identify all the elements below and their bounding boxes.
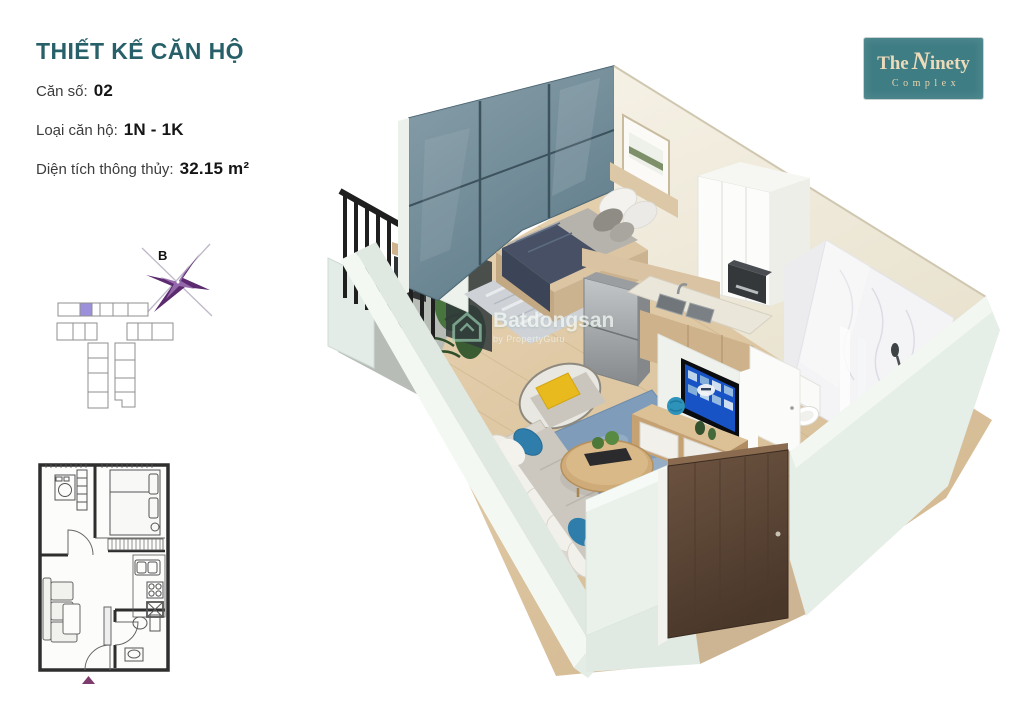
entrance-door [658,443,788,646]
spec-clear-area: Diện tích thông thủy:32.15 m² [36,159,249,179]
spec-unit-type: Loại căn hộ:1N - 1K [36,120,249,140]
unit-cells [57,303,173,408]
table-plant [592,437,604,449]
plan-bed [110,470,160,535]
console-plant [695,421,705,435]
watermark-brand: Batdongsan [493,310,614,331]
watermark: Batdongsan by PropertyGuru [448,308,614,346]
compass: B [142,244,212,316]
compass-north-label: B [158,248,167,263]
apartment-design-sheet: B [0,0,1024,724]
entrance-door-leaf [668,450,788,638]
project-logo: TheNinety Complex [864,38,983,99]
logo-stylized-n: N [912,48,930,75]
spec-value: 32.15 m² [180,159,250,178]
glass-corner-post [398,118,409,298]
spec-value: 02 [94,81,113,100]
page-title: THIẾT KẾ CĂN HỘ [36,38,249,65]
watermark-byline: by PropertyGuru [493,334,614,344]
logo-name: TheNinety [877,49,970,74]
blue-coral-decor [667,397,685,415]
entry-arrow [82,676,95,684]
header: THIẾT KẾ CĂN HỘ Căn số:02 Loại căn hộ:1N… [36,38,249,198]
watermark-house-icon [448,308,486,346]
floor-plan-2d [28,452,178,692]
highlighted-unit-cell [80,303,92,316]
spec-unit-number: Căn số:02 [36,81,249,101]
spec-label: Loại căn hộ: [36,122,118,139]
spec-label: Diện tích thông thủy: [36,161,174,178]
spec-label: Căn số: [36,83,88,100]
building-key-plan: B [40,240,220,420]
console-plant [708,428,716,440]
table-plant [605,431,619,445]
spec-value: 1N - 1K [124,120,184,139]
door-handle [776,532,781,537]
logo-subtitle: Complex [887,78,960,89]
